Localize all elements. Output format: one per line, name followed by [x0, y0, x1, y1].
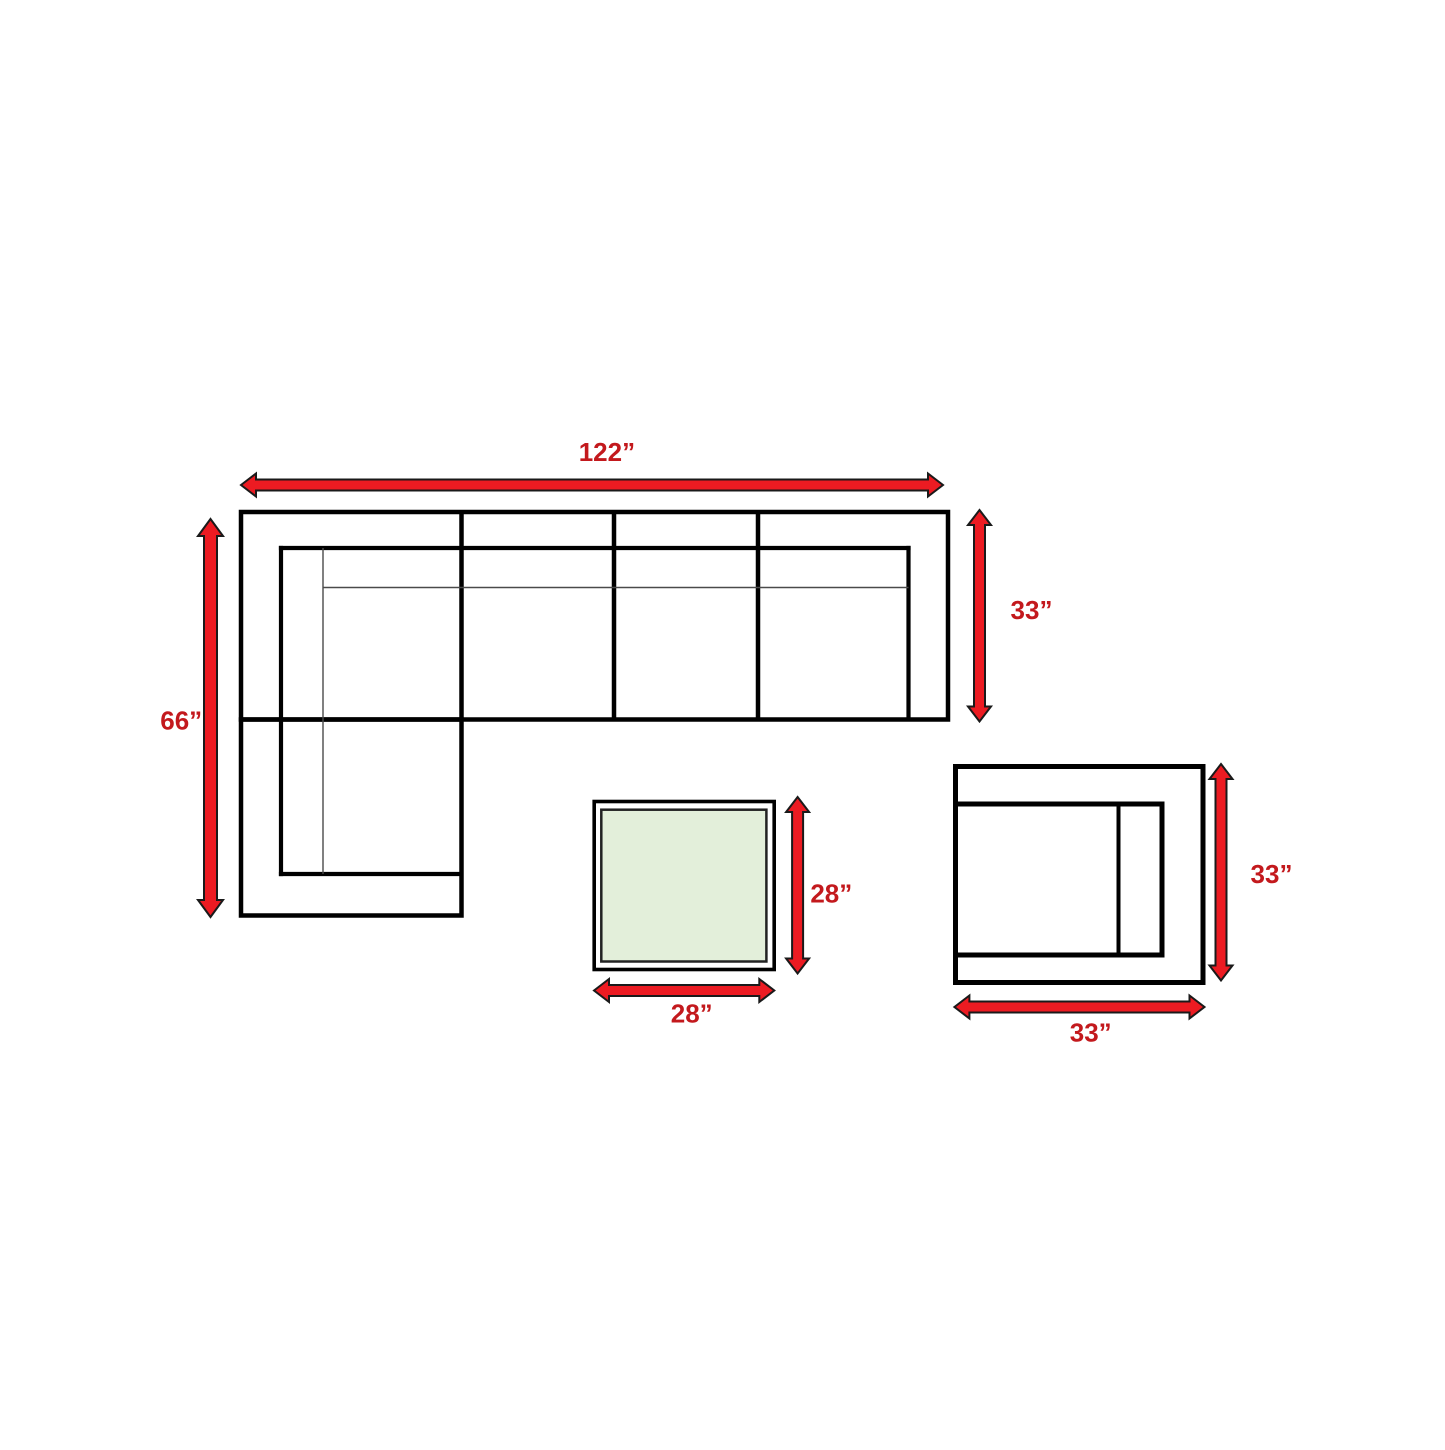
svg-text:66”: 66”: [160, 705, 202, 735]
svg-text:28”: 28”: [671, 999, 713, 1029]
svg-text:33”: 33”: [1070, 1018, 1112, 1048]
svg-text:122”: 122”: [579, 437, 635, 467]
svg-text:33”: 33”: [1011, 595, 1053, 625]
svg-text:28”: 28”: [810, 879, 852, 909]
svg-text:33”: 33”: [1251, 859, 1293, 889]
